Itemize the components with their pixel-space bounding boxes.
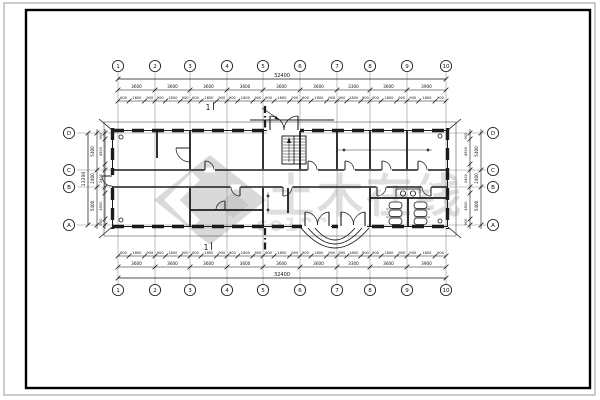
dimension-text: 900 xyxy=(255,251,263,255)
dimension-text: 900 xyxy=(99,218,103,226)
dimension-text: 1800 xyxy=(422,96,432,100)
dimension-text: 1800 xyxy=(204,96,214,100)
dimension-text: 1800 xyxy=(384,251,394,255)
dimension-text: 32400 xyxy=(274,73,290,79)
dimension-text: 2400 xyxy=(90,173,95,184)
dimension-text: 4500 xyxy=(464,146,468,156)
dimension-text: 1800 xyxy=(384,96,394,100)
dimension-text: 900 xyxy=(409,251,417,255)
dimension-text: 13200 xyxy=(81,172,87,187)
dimension-text: 32400 xyxy=(274,272,290,278)
grid-bubble-label: D xyxy=(67,131,71,137)
dimension-text: 900 xyxy=(339,251,347,255)
dimension-text: 4500 xyxy=(464,201,468,211)
grid-bubble-label: A xyxy=(491,223,495,229)
dimension-text: 900 xyxy=(218,96,226,100)
dimension-text: 900 xyxy=(229,96,237,100)
dimension-text: 900 xyxy=(218,251,226,255)
dimension-text: 1800 xyxy=(132,96,142,100)
dimension-text: 900 xyxy=(192,96,200,100)
dimension-text: 3600 xyxy=(383,84,394,89)
grid-bubble-label: 2 xyxy=(153,288,157,294)
dimension-text: 3900 xyxy=(421,84,432,89)
dimension-text: 4500 xyxy=(99,201,103,211)
dimension-text: 3600 xyxy=(240,261,251,266)
grid-bubble-label: 3 xyxy=(188,288,192,294)
dimension-text: 900 xyxy=(328,251,336,255)
grid-bubble-label: A xyxy=(67,223,71,229)
grid-bubble-label: 5 xyxy=(261,64,265,70)
dimension-text: 1800 xyxy=(132,251,142,255)
grid-bubble-label: 10 xyxy=(442,64,450,70)
grid-bubble-label: 3 xyxy=(188,64,192,70)
dimension-text: 1800 xyxy=(168,96,178,100)
dimension-text: 4500 xyxy=(99,146,103,156)
dimension-text: 1800 xyxy=(204,251,214,255)
grid-bubble-label: 9 xyxy=(405,288,409,294)
dimension-text: 900 xyxy=(120,251,128,255)
dimension-text: 3600 xyxy=(313,84,324,89)
dimension-text: 1800 xyxy=(314,96,324,100)
dimension-text: 900 xyxy=(291,96,299,100)
dimension-text: 900 xyxy=(372,96,380,100)
dimension-text: 3600 xyxy=(131,84,142,89)
dimension-text: 3300 xyxy=(348,261,359,266)
grid-bubble-label: 7 xyxy=(335,288,339,294)
dimension-text: 3600 xyxy=(167,261,178,266)
dimension-text: 900 xyxy=(398,96,406,100)
grid-bubble-label: C xyxy=(67,168,71,174)
dimension-text: 900 xyxy=(362,251,370,255)
dimension-text: 3600 xyxy=(240,84,251,89)
grid-bubble-label: 10 xyxy=(442,288,450,294)
dimension-text: 900 xyxy=(192,251,200,255)
dimension-text: 900 xyxy=(182,96,190,100)
dimension-text: 900 xyxy=(157,251,165,255)
dimension-text: 1800 xyxy=(277,96,287,100)
dimension-text: 5400 xyxy=(90,146,95,157)
dimension-text: 900 xyxy=(146,251,154,255)
dimension-text: 5400 xyxy=(474,200,479,211)
dimension-text: 3600 xyxy=(276,261,287,266)
dimension-text: 900 xyxy=(437,96,445,100)
dimension-text: 1800 xyxy=(241,96,251,100)
dimension-text: 3600 xyxy=(203,261,214,266)
dimension-text: 3600 xyxy=(167,84,178,89)
cad-floor-plan-screenshot: 土木在线 co188 xyxy=(0,0,600,400)
dimension-text: 900 xyxy=(255,96,263,100)
dimension-text: 1800 xyxy=(314,251,324,255)
grid-bubble-label: 1 xyxy=(116,288,120,294)
grid-bubble-label: 8 xyxy=(368,288,372,294)
grid-bubble-label: B xyxy=(67,185,71,191)
dimension-text: 3900 xyxy=(421,261,432,266)
grid-bubble-label: D xyxy=(491,131,495,137)
dimension-text: 900 xyxy=(398,251,406,255)
dimension-text: 1800 xyxy=(422,251,432,255)
section-marker-top: 1 xyxy=(206,103,211,112)
dimension-text: 900 xyxy=(120,96,128,100)
dimension-text: 2400 xyxy=(99,173,103,183)
dimension-text: 900 xyxy=(372,251,380,255)
dimension-text: 900 xyxy=(464,218,468,226)
dimension-text: 1800 xyxy=(277,251,287,255)
dimension-text: 2400 xyxy=(474,173,479,184)
dimension-text: 5400 xyxy=(90,200,95,211)
dimension-text: 900 xyxy=(157,96,165,100)
grid-bubble-label: 5 xyxy=(261,288,265,294)
dimension-text: 5400 xyxy=(474,146,479,157)
dimension-text: 900 xyxy=(291,251,299,255)
dimension-text: 3600 xyxy=(383,261,394,266)
dimension-text: 3300 xyxy=(348,84,359,89)
dimension-text: 3600 xyxy=(276,84,287,89)
dimension-text: 900 xyxy=(265,96,273,100)
dimension-text: 900 xyxy=(302,96,310,100)
dimension-text: 1800 xyxy=(168,251,178,255)
grid-bubble-label: B xyxy=(491,185,495,191)
grid-bubble-label: 4 xyxy=(225,64,229,70)
dimension-text: 900 xyxy=(339,96,347,100)
grid-bubble-label: 4 xyxy=(225,288,229,294)
grid-bubble-label: 1 xyxy=(116,64,120,70)
grid-bubble-label: 6 xyxy=(298,64,302,70)
dimension-text: 900 xyxy=(464,132,468,140)
dimension-text: 900 xyxy=(229,251,237,255)
dimension-text: 1800 xyxy=(349,251,359,255)
dimension-text: 3600 xyxy=(131,261,142,266)
dimension-text: 900 xyxy=(328,96,336,100)
dimension-text: 900 xyxy=(409,96,417,100)
dimension-text: 1800 xyxy=(349,96,359,100)
dimension-text: 2400 xyxy=(464,173,468,183)
dimension-text: 900 xyxy=(146,96,154,100)
dimension-text: 900 xyxy=(265,251,273,255)
floor-plan-drawing: 土木在线 co188 xyxy=(0,0,600,400)
grid-bubble-label: 8 xyxy=(368,64,372,70)
grid-bubble-label: 9 xyxy=(405,64,409,70)
dimension-text: 900 xyxy=(302,251,310,255)
dimension-text: 900 xyxy=(182,251,190,255)
grid-bubble-label: 7 xyxy=(335,64,339,70)
dimension-text: 1800 xyxy=(241,251,251,255)
dimension-text: 900 xyxy=(99,132,103,140)
dimension-text: 3600 xyxy=(313,261,324,266)
dimension-text: 3600 xyxy=(203,84,214,89)
dimension-text: 900 xyxy=(362,96,370,100)
grid-bubble-label: 2 xyxy=(153,64,157,70)
grid-bubble-label: 6 xyxy=(298,288,302,294)
grid-bubble-label: C xyxy=(491,168,495,174)
dimension-text: 900 xyxy=(437,251,445,255)
